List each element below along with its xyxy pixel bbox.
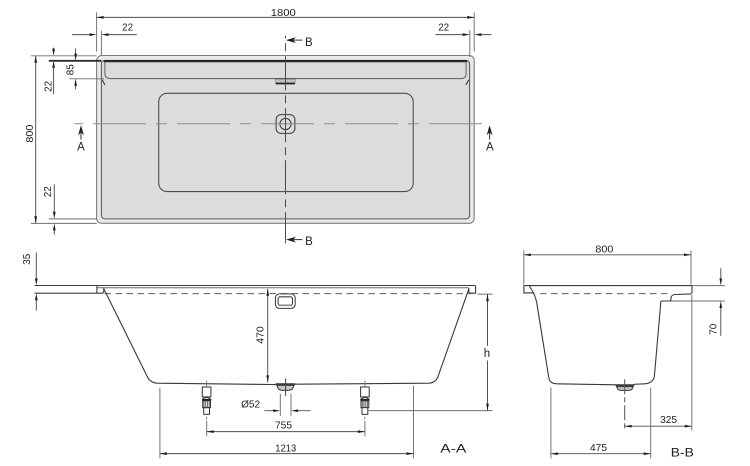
svg-text:800: 800 [24,124,36,142]
svg-text:1213: 1213 [275,442,296,454]
svg-text:85: 85 [65,64,77,75]
svg-text:755: 755 [275,420,292,432]
svg-text:325: 325 [660,414,677,426]
svg-text:A: A [77,142,85,154]
svg-text:70: 70 [708,324,720,335]
svg-text:B: B [305,37,313,49]
svg-text:800: 800 [595,244,613,256]
svg-text:470: 470 [254,326,266,344]
svg-text:A: A [486,142,494,154]
svg-text:B: B [305,236,313,248]
svg-text:22: 22 [438,22,449,34]
svg-text:A-A: A-A [440,442,467,456]
svg-text:Ø52: Ø52 [241,398,260,410]
svg-text:22: 22 [42,81,54,92]
svg-text:35: 35 [21,254,33,265]
svg-text:1800: 1800 [271,7,296,19]
svg-text:22: 22 [42,186,54,197]
svg-text:475: 475 [590,442,607,454]
svg-text:h: h [484,348,490,360]
svg-text:22: 22 [122,22,133,34]
svg-text:B-B: B-B [671,446,694,460]
